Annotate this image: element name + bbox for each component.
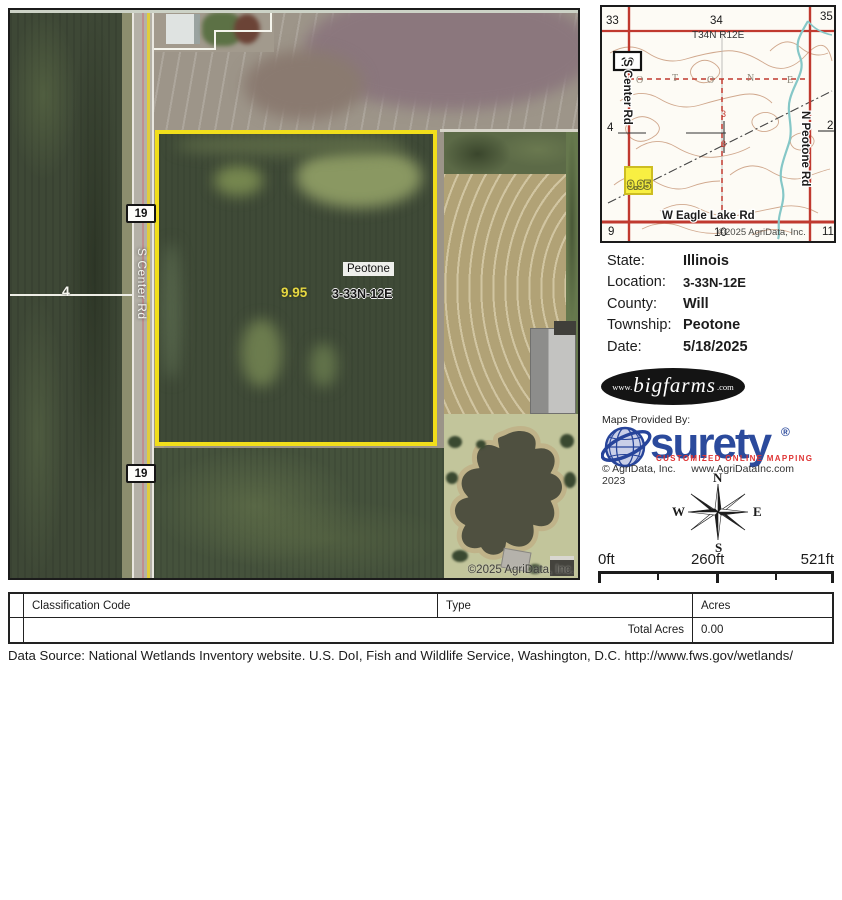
info-value: 3-33N-12E xyxy=(683,275,746,290)
info-row-township: Township: Peotone xyxy=(607,315,837,337)
tree xyxy=(476,440,486,449)
section-33: 33 xyxy=(606,15,619,27)
farm-red-tree xyxy=(234,14,260,44)
property-line xyxy=(270,10,272,32)
tree xyxy=(446,472,458,484)
compass-east-label: E xyxy=(753,504,762,520)
section-3-bottom: 3 xyxy=(721,139,726,149)
route-19-marker-top: 19 xyxy=(126,204,156,223)
peotone-rd-label: N Peotone Rd xyxy=(799,111,811,186)
property-line xyxy=(214,30,272,32)
report-page: 4 19 19 S Center Rd Peotone 9.95 3-33N-1… xyxy=(0,0,842,900)
swatch-column-header xyxy=(10,594,24,617)
bigfarms-name: bigfarms xyxy=(633,373,716,398)
property-line xyxy=(214,30,216,50)
parcel-edge-patch xyxy=(162,242,181,381)
north-edge-road xyxy=(10,10,578,13)
inset-copyright: ©2025 AgriData, Inc. xyxy=(718,227,806,238)
scale-tick xyxy=(657,574,659,580)
info-value: Peotone xyxy=(683,317,740,333)
pond xyxy=(448,422,572,562)
total-acres-value: 0.00 xyxy=(693,618,832,642)
center-rd-label: S Center Rd xyxy=(621,59,633,125)
classification-table: Classification Code Type Acres Total Acr… xyxy=(8,592,834,644)
route-number: 19 xyxy=(135,468,148,480)
scrub-strip-east xyxy=(444,132,578,176)
parcel-acres-label: 9.95 xyxy=(627,178,651,192)
scale-tick xyxy=(598,574,601,583)
scale-labels: 0ft 260ft 521ft xyxy=(598,551,834,568)
tree xyxy=(448,436,462,448)
info-label: Date: xyxy=(607,339,683,355)
parcel-acres-label: 9.95 xyxy=(281,285,307,300)
bigfarms-prefix: www. xyxy=(612,382,632,392)
scale-tick xyxy=(831,574,834,583)
total-acres-label: Total Acres xyxy=(24,618,693,642)
field-south-of-parcel xyxy=(154,448,444,578)
info-label: County: xyxy=(607,296,683,312)
tilled-field-north xyxy=(154,10,578,132)
parcel-location-label: 3-33N-12E xyxy=(332,287,392,301)
table-total-row: Total Acres 0.00 xyxy=(10,618,832,642)
info-row-county: County: Will xyxy=(607,293,837,315)
tree xyxy=(560,434,574,448)
scale-start-label: 0ft xyxy=(598,551,615,568)
tree xyxy=(452,550,468,562)
bigfarms-logo: www. bigfarms .com xyxy=(601,368,745,405)
bigfarms-suffix: .com xyxy=(717,382,734,392)
surety-copyright: © AgriData, Inc. 2023 xyxy=(602,463,691,487)
route-19-marker-bottom: 19 xyxy=(126,464,156,483)
scale-tick xyxy=(716,574,719,583)
parcel-info-panel: State: Illinois Location: 3-33N-12E Coun… xyxy=(607,250,837,358)
scale-middle-label: 260ft xyxy=(691,551,724,568)
parcel-light-patch xyxy=(214,165,263,196)
info-label: Township: xyxy=(607,317,683,333)
property-line xyxy=(154,48,216,50)
parcel-light-patch xyxy=(241,319,282,387)
aerial-map: 4 19 19 S Center Rd Peotone 9.95 3-33N-1… xyxy=(8,8,580,580)
pond-water xyxy=(452,428,564,557)
scale-end-label: 521ft xyxy=(801,551,834,568)
section-34: 34 xyxy=(710,15,723,27)
tree xyxy=(564,472,576,488)
section-3-top: 3 xyxy=(721,109,726,119)
info-label: State: xyxy=(607,253,683,269)
info-value: 5/18/2025 xyxy=(683,339,748,355)
barn-annex xyxy=(554,321,576,335)
section-35: 35 xyxy=(820,11,833,23)
compass-rose-icon xyxy=(686,484,750,542)
farm-building xyxy=(166,14,200,44)
info-row-state: State: Illinois xyxy=(607,250,837,272)
registered-mark: ® xyxy=(781,425,790,439)
township-range-label: T34N R12E xyxy=(692,30,745,41)
parcel-light-patch xyxy=(310,343,337,386)
town-label: Peotone xyxy=(343,262,394,276)
parcel-scrub-row xyxy=(175,134,405,156)
info-value: Will xyxy=(683,296,709,312)
compass-west-label: W xyxy=(672,504,685,520)
data-source-note: Data Source: National Wetlands Inventory… xyxy=(8,648,793,663)
township-letter: O xyxy=(707,75,714,86)
swatch-cell xyxy=(10,618,24,642)
table-header-row: Classification Code Type Acres xyxy=(10,594,832,618)
plat-inset-map: 9.95 19 33 34 35 4 2 9 10 11 3 3 T34N R1… xyxy=(600,5,836,243)
section-2: 2 xyxy=(827,120,833,132)
classification-code-header: Classification Code xyxy=(24,594,438,617)
township-letter: O xyxy=(636,75,643,86)
compass-north-label: N xyxy=(713,470,722,486)
road-edge-line xyxy=(132,10,134,578)
info-value: Illinois xyxy=(683,253,729,269)
eagle-lake-rd-label: W Eagle Lake Rd xyxy=(662,210,755,222)
surety-tagline: CUSTOMIZED ONLINE MAPPING xyxy=(656,454,813,463)
info-row-date: Date: 5/18/2025 xyxy=(607,336,837,358)
scale-bar: 0ft 260ft 521ft xyxy=(598,551,834,583)
barn-building xyxy=(530,328,576,414)
type-header: Type xyxy=(438,594,693,617)
section-9: 9 xyxy=(608,226,614,238)
section-11: 11 xyxy=(822,226,834,238)
parcel-light-patch xyxy=(296,146,422,208)
map-copyright: ©2025 AgriData, Inc. xyxy=(468,564,574,576)
road-name-label: S Center Rd xyxy=(135,248,149,320)
info-row-location: Location: 3-33N-12E xyxy=(607,272,837,294)
section-number-label: 4 xyxy=(62,283,70,299)
township-letter: E xyxy=(787,75,793,86)
acres-header: Acres xyxy=(693,594,832,617)
scale-tick xyxy=(775,574,777,580)
route-number: 19 xyxy=(135,208,148,220)
township-letter: T xyxy=(672,73,678,84)
section-4: 4 xyxy=(607,122,614,134)
scale-line xyxy=(598,571,834,583)
info-label: Location: xyxy=(607,274,683,290)
township-letter: N xyxy=(747,73,754,84)
plat-map-canvas: 9.95 19 33 34 35 4 2 9 10 11 3 3 T34N R1… xyxy=(602,7,834,241)
field-texture-patch xyxy=(244,50,364,120)
section-line xyxy=(10,294,132,296)
